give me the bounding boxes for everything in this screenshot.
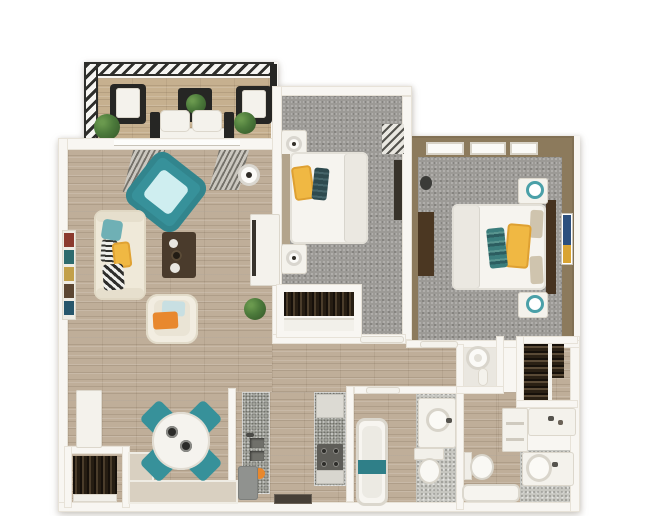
- floor-lamp-center: [246, 172, 252, 178]
- living-room-plant: [244, 298, 266, 320]
- balcony-plant-left: [94, 114, 120, 140]
- wall-utility-right: [496, 336, 504, 392]
- bathroom1-faucet: [446, 418, 452, 423]
- sofa-pillow-patterned: [102, 263, 125, 290]
- stove-burner-3: [321, 461, 327, 467]
- bedroom2-foot-blanket: [454, 206, 480, 288]
- stove-burner-2: [333, 448, 339, 454]
- entry-closet-shelf: [73, 494, 117, 502]
- coffee-table-tray-white: [169, 239, 178, 248]
- stove-burner-1: [321, 448, 327, 454]
- balcony-railing-top: [84, 62, 274, 76]
- dining-plate-2: [180, 440, 192, 452]
- armchair-pillow-orange: [153, 311, 179, 329]
- bedroom1-corner-blinds: [382, 124, 404, 154]
- stove-burner-4: [333, 461, 339, 467]
- bedroom1-wall-tv: [394, 160, 402, 220]
- shelf-books-2: [64, 250, 74, 264]
- wall-kitchen-right: [346, 386, 354, 502]
- entry-closet-clothes: [73, 456, 117, 494]
- wall-utility-bottom: [456, 386, 504, 394]
- toilet-1-bowl: [418, 458, 441, 484]
- walkin-closet-clothes-left: [524, 344, 548, 400]
- kitchen-stove: [317, 444, 343, 472]
- wall-walkin-top: [516, 336, 578, 344]
- bedroom2-pillow-tan-2: [529, 256, 543, 285]
- walkin-closet-clothes-right: [552, 344, 564, 378]
- bedroom1-closet-clothes: [284, 292, 354, 316]
- bathroom2-faucet-1: [548, 416, 554, 421]
- bedroom2-wall-art-gold: [563, 245, 571, 263]
- entry-door: [76, 390, 102, 448]
- bedroom2-pillow-yellow: [504, 223, 532, 269]
- wall-beige-corner-horizontal: [128, 480, 238, 504]
- bedroom1-lamp-bottom-center: [292, 256, 296, 260]
- bedroom2-lamp-bottom: [526, 295, 544, 313]
- balcony-armchair-left-cushion: [116, 88, 140, 118]
- bedroom2-headboard: [546, 200, 556, 294]
- bedroom2-window-1: [426, 142, 464, 155]
- bedroom1-door: [360, 336, 404, 343]
- wall-shelf: [62, 230, 76, 320]
- bedroom1-closet-shelf: [284, 318, 354, 331]
- accent-chair-pillow: [142, 168, 190, 216]
- sofa-pillow-teal: [101, 219, 124, 242]
- coffee-table-bowl-dark: [171, 250, 182, 261]
- balcony-loveseat-cushion-left: [160, 110, 190, 132]
- kitchen-upper-cabinet: [316, 394, 344, 418]
- wall-walkin-bottom: [516, 400, 578, 408]
- water-heater-cap: [474, 354, 482, 362]
- kitchen-sink-basin-2: [250, 451, 264, 461]
- wall-bedroom1-top: [272, 86, 412, 96]
- bathroom1-door: [366, 387, 400, 394]
- dining-plate-1: [166, 426, 178, 438]
- wall-entry-closet-left: [64, 446, 72, 508]
- bedroom2-lamp-top: [526, 181, 544, 199]
- bedroom1-lamp-top-center: [292, 142, 296, 146]
- bedroom2-wall-art: [562, 214, 572, 264]
- bathroom2-faucet-2: [558, 420, 563, 425]
- shelf-books-5: [64, 301, 74, 315]
- shelf-books-3: [64, 267, 74, 281]
- balcony-plant-right: [234, 112, 256, 134]
- utility-shelf-item: [478, 368, 488, 386]
- bedroom2-window-2: [470, 142, 506, 155]
- kitchen-faucet: [246, 433, 254, 437]
- bathroom2-vanity-counter: [528, 408, 576, 436]
- shelf-books-1: [64, 233, 74, 247]
- floor-plan: [0, 0, 650, 516]
- bathroom2-sink-2: [526, 454, 552, 482]
- bathtub-2: [462, 484, 520, 502]
- bathroom2-vanity-side: [502, 408, 528, 452]
- tv-screen: [252, 220, 256, 276]
- bathroom2-faucet-3: [552, 462, 558, 467]
- toilet-2-bowl: [470, 454, 494, 480]
- bedroom2-pillow-tan-1: [529, 210, 543, 239]
- shelf-books-4: [64, 284, 74, 298]
- bedroom1-foot-blanket: [344, 154, 366, 242]
- bedroom1-headboard: [282, 154, 290, 244]
- balcony-loveseat-cushion-right: [192, 110, 222, 132]
- kitchen-appliance: [238, 466, 258, 500]
- living-window: [114, 140, 240, 146]
- bathtub-1-towel: [358, 460, 386, 474]
- wall-walkin-left: [516, 336, 524, 408]
- bedroom2-door: [420, 341, 458, 348]
- bedroom2-dresser: [418, 212, 434, 276]
- bedroom2-window-3: [510, 142, 538, 155]
- kitchen-sink-basin-1: [250, 438, 264, 448]
- floor-plan-image: [0, 0, 650, 516]
- hallway-floor: [272, 342, 458, 392]
- coffee-table-plate: [170, 263, 180, 273]
- kitchen-floor-mat: [274, 494, 312, 504]
- bathroom2-vanity-drawer-line-1: [506, 422, 524, 425]
- bedroom2-floor-object: [420, 176, 432, 190]
- kitchen-lower-cabinet: [316, 470, 344, 484]
- bedroom2-wall-art-blue: [563, 215, 571, 245]
- bathroom2-vanity-drawer-line-2: [506, 438, 524, 441]
